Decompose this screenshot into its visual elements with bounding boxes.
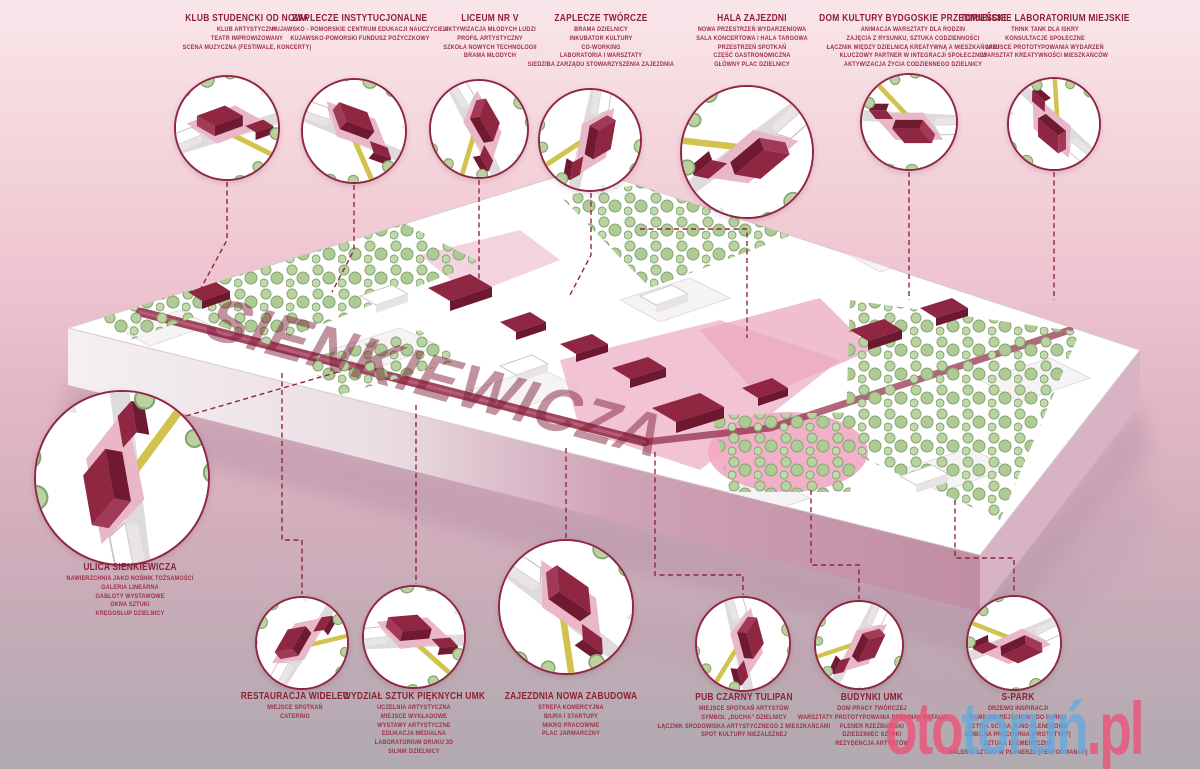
poster-canvas: SIENKIEWICZA KLUB STU: [0, 0, 1200, 769]
callout-lines: NAWIERZCHNIA JAKO NOŚNIK TOŻSAMOŚCI GALE…: [21, 575, 239, 619]
callout-title: TORUŃSKIE LABORATORIUM MIEJSKIE: [902, 13, 1188, 24]
callout-thumb-wydzial-sztuk-pieknych: [362, 585, 466, 689]
callout-thumb-zaplecze-tworcze: [538, 88, 642, 192]
callout-label-torunskie-laboratorium: TORUŃSKIE LABORATORIUM MIEJSKIE THINK TA…: [902, 13, 1188, 61]
watermark-oto: oto: [885, 687, 961, 769]
ototorun-watermark: ototoruń.pl: [885, 686, 1142, 769]
callout-thumb-ulica-sienkiewicza: [34, 390, 210, 566]
callout-lines: THINK TANK DLA ISKRY KONSULTACJE SPOŁECZ…: [902, 26, 1188, 61]
callout-thumb-zajezdnia-nowa: [498, 539, 634, 675]
callout-title: ULICA SIENKIEWICZA: [21, 562, 239, 573]
callout-thumb-torunskie-laboratorium: [1007, 77, 1101, 171]
watermark-pl: .pl: [1087, 687, 1143, 769]
callout-thumb-pub-czarny-tulipan: [695, 596, 791, 692]
watermark-torun: toruń: [961, 687, 1086, 769]
callout-thumb-klub-studencki: [174, 75, 280, 181]
callout-thumb-liceum-nr-v: [429, 79, 529, 179]
callout-thumb-budynki-umk: [814, 600, 904, 690]
callout-thumb-restauracja-widelec: [255, 596, 349, 690]
callout-thumb-hala-zajezdni: [680, 85, 814, 219]
callout-thumb-s-park: [966, 595, 1062, 691]
callout-label-ulica-sienkiewicza: ULICA SIENKIEWICZA NAWIERZCHNIA JAKO NOŚ…: [21, 562, 239, 619]
callout-thumb-dom-kultury: [860, 73, 958, 171]
callout-thumb-zaplecze-instytucjonalne: [301, 78, 407, 184]
